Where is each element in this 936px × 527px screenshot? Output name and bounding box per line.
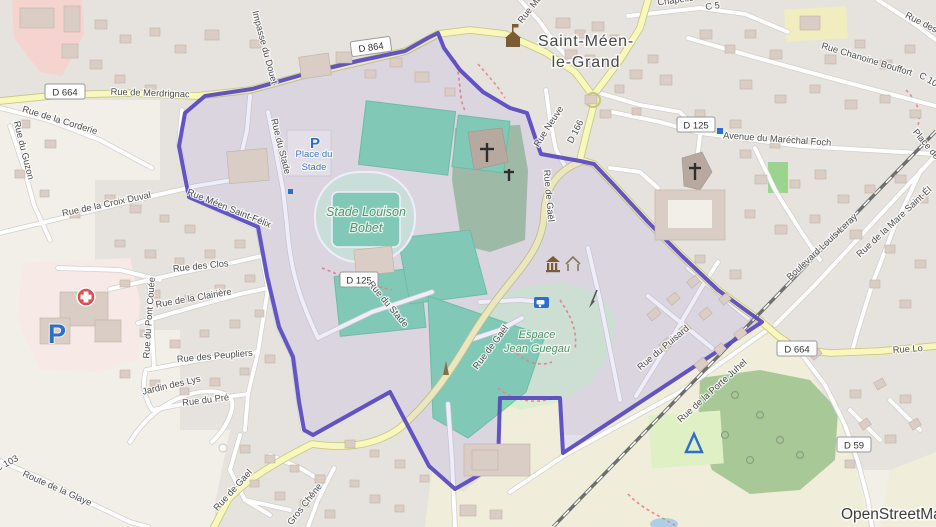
parking-icon-hospital: P [48,319,66,349]
town-label-line1: Saint-Méen- [538,33,634,50]
road-badge-d125-northeast: D 125 [677,117,715,132]
street-label-rue-lo: Rue Lo [892,343,923,355]
espace-jean-guegau-label-line2: Jean Guegau [503,343,570,355]
hospital-icon [77,288,95,306]
map-canvas[interactable]: P P D 664 D 864 D 125 D 125 D 664 D 59 R… [0,0,936,527]
road-badge-d59: D 59 [837,437,871,452]
svg-text:D 125: D 125 [683,121,708,132]
road-badge-d664-southeast: D 664 [777,341,817,356]
stade-louison-bobet-label-line1: Stade Louison [326,205,406,219]
road-badge-d664-west: D 664 [45,84,85,99]
svg-text:P: P [48,319,66,349]
street-label-c5: C 5 [705,0,721,12]
place-du-stade-label-line1: Place du [296,149,333,160]
place-du-stade-label-line2: Stade [302,162,327,173]
svg-text:D 664: D 664 [784,345,809,356]
svg-text:D 59: D 59 [844,441,864,452]
osm-attribution-link[interactable]: OpenStreetMap [841,506,936,523]
espace-jean-guegau-label-line1: Espace [519,329,556,341]
town-label-line2: le-Grand [552,54,621,71]
caravan-site-icon [534,297,549,308]
svg-text:D 664: D 664 [52,88,77,99]
stade-louison-bobet-label-line2: Bobet [350,221,383,235]
